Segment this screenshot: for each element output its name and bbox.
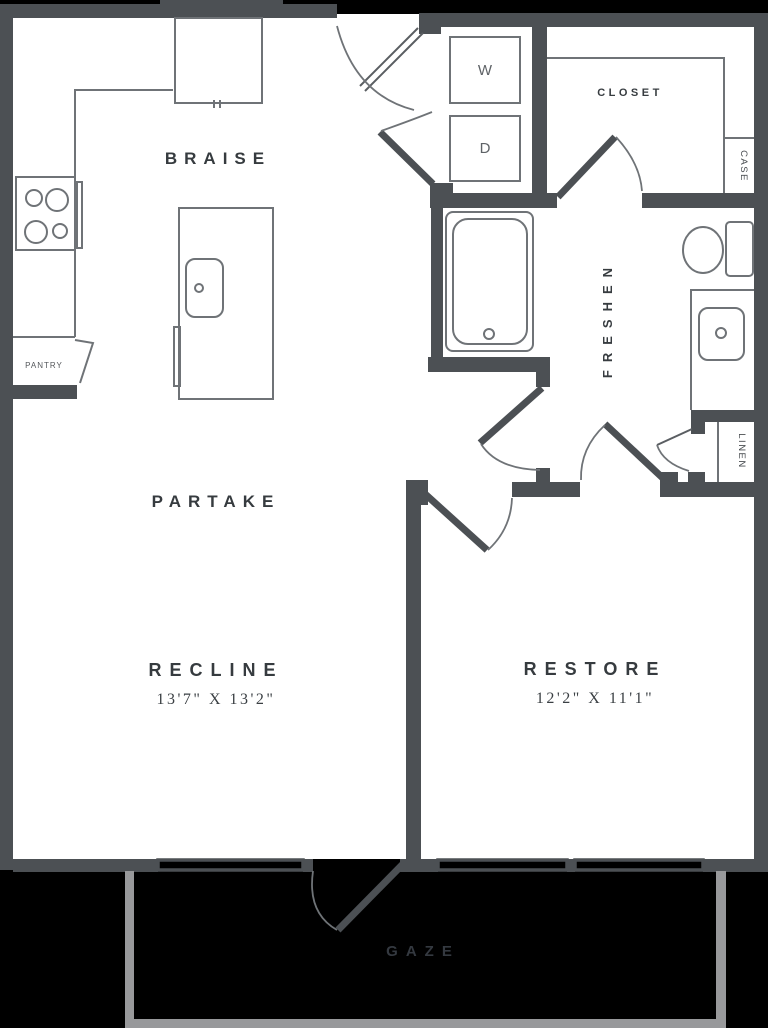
bedroom-window-2 [575, 860, 703, 870]
outer-wall-fridge-nook [160, 0, 283, 18]
room-label-dining: PARTAKE [152, 492, 281, 511]
room-label-bedroom: RESTORE [524, 659, 667, 679]
tub-niche-left-wall [431, 195, 443, 372]
bath-doorway-top-block [536, 357, 550, 387]
bedroom-window-1 [438, 860, 567, 870]
linen-label: LINEN [736, 433, 747, 468]
room-label-closet: CLOSET [597, 87, 663, 99]
bottom-wall-4 [703, 859, 768, 872]
balcony-door-opening [313, 859, 400, 873]
living-bedroom-divider-wall [406, 505, 421, 859]
washer-label: W [478, 62, 493, 79]
dryer-label: D [480, 140, 491, 157]
linen-bottom-wall [663, 482, 755, 497]
laundry-bottom-wall [430, 193, 547, 208]
laundry-closet-divider-wall [532, 27, 547, 208]
outer-wall-right [754, 13, 768, 872]
linen-top-wall [691, 410, 754, 422]
balcony-wall-left [125, 871, 134, 1023]
entry-jamb-stub [419, 13, 441, 34]
bedroom-top-wall-left [512, 482, 580, 497]
kitchen-island [179, 208, 273, 399]
balcony-wall-bottom [125, 1019, 726, 1028]
outer-wall-top-left [0, 4, 168, 18]
case-label: CASE [738, 150, 749, 182]
floor-plan-svg: BRAISE PARTAKE RECLINE 13'7" X 13'2" RES… [0, 0, 768, 1028]
pantry-bottom-wall [12, 385, 77, 399]
bottom-wall-3 [400, 859, 438, 872]
linen-top-jamb [691, 422, 705, 434]
room-label-kitchen: BRAISE [165, 149, 271, 168]
balcony-wall-right [716, 871, 726, 1028]
floor-area [4, 14, 758, 866]
bedroom-dimensions: 12'2" X 11'1" [536, 690, 654, 707]
room-label-living: RECLINE [148, 660, 283, 680]
living-dimensions: 13'7" X 13'2" [157, 691, 276, 708]
tub-niche-bottom-wall [428, 357, 550, 372]
pantry-label: PANTRY [25, 361, 63, 370]
floor-plan: BRAISE PARTAKE RECLINE 13'7" X 13'2" RES… [0, 0, 768, 1028]
entry-opening [337, 0, 419, 14]
bottom-wall-1 [13, 859, 158, 872]
outer-wall-left [0, 4, 13, 870]
closet-bottom-wall [642, 193, 754, 208]
room-label-balcony: GAZE [386, 943, 460, 960]
outer-wall-top-mid [283, 4, 337, 18]
room-label-bathroom: FRESHEN [600, 260, 615, 378]
closet-door-left-jamb [547, 193, 557, 208]
living-window [158, 860, 303, 870]
outer-wall-top-right [419, 13, 768, 27]
